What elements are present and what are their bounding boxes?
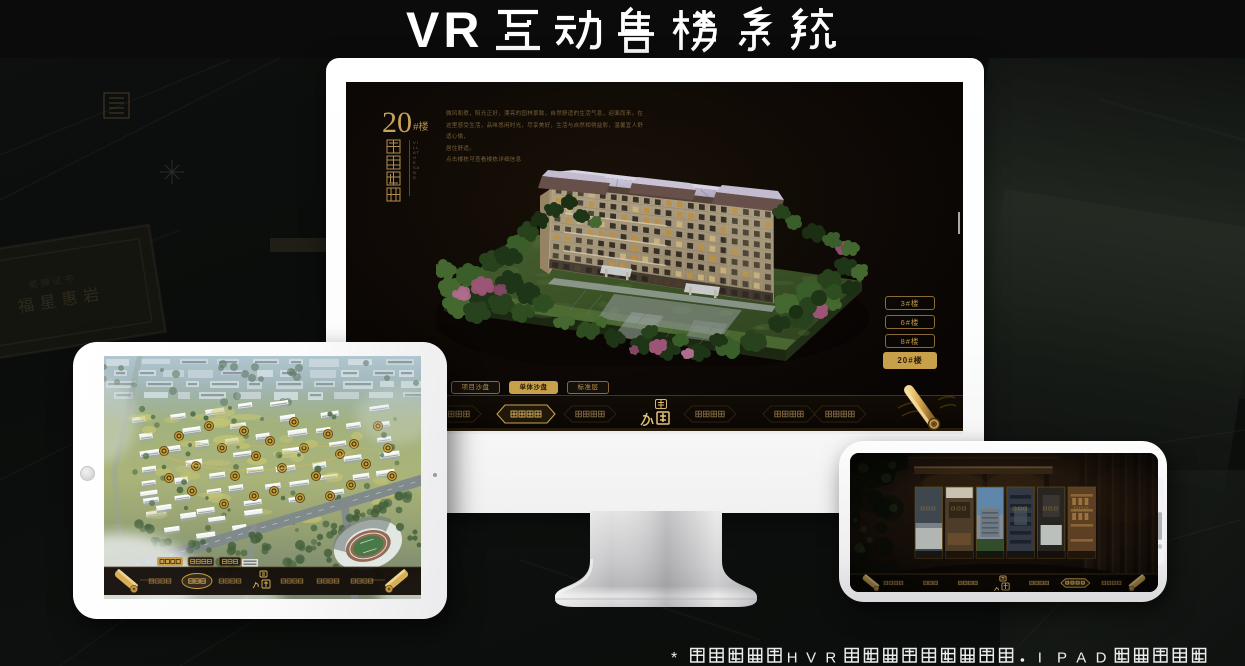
svg-text:D: D xyxy=(1096,650,1107,666)
svg-text:R: R xyxy=(825,650,836,666)
svg-text:I: I xyxy=(1038,650,1042,666)
svg-text:*: * xyxy=(671,650,677,666)
svg-text:H: H xyxy=(787,650,798,666)
svg-text:VR: VR xyxy=(406,3,483,55)
svg-text:V: V xyxy=(806,650,816,666)
svg-text:P: P xyxy=(1057,650,1067,666)
svg-text:A: A xyxy=(1076,650,1086,666)
